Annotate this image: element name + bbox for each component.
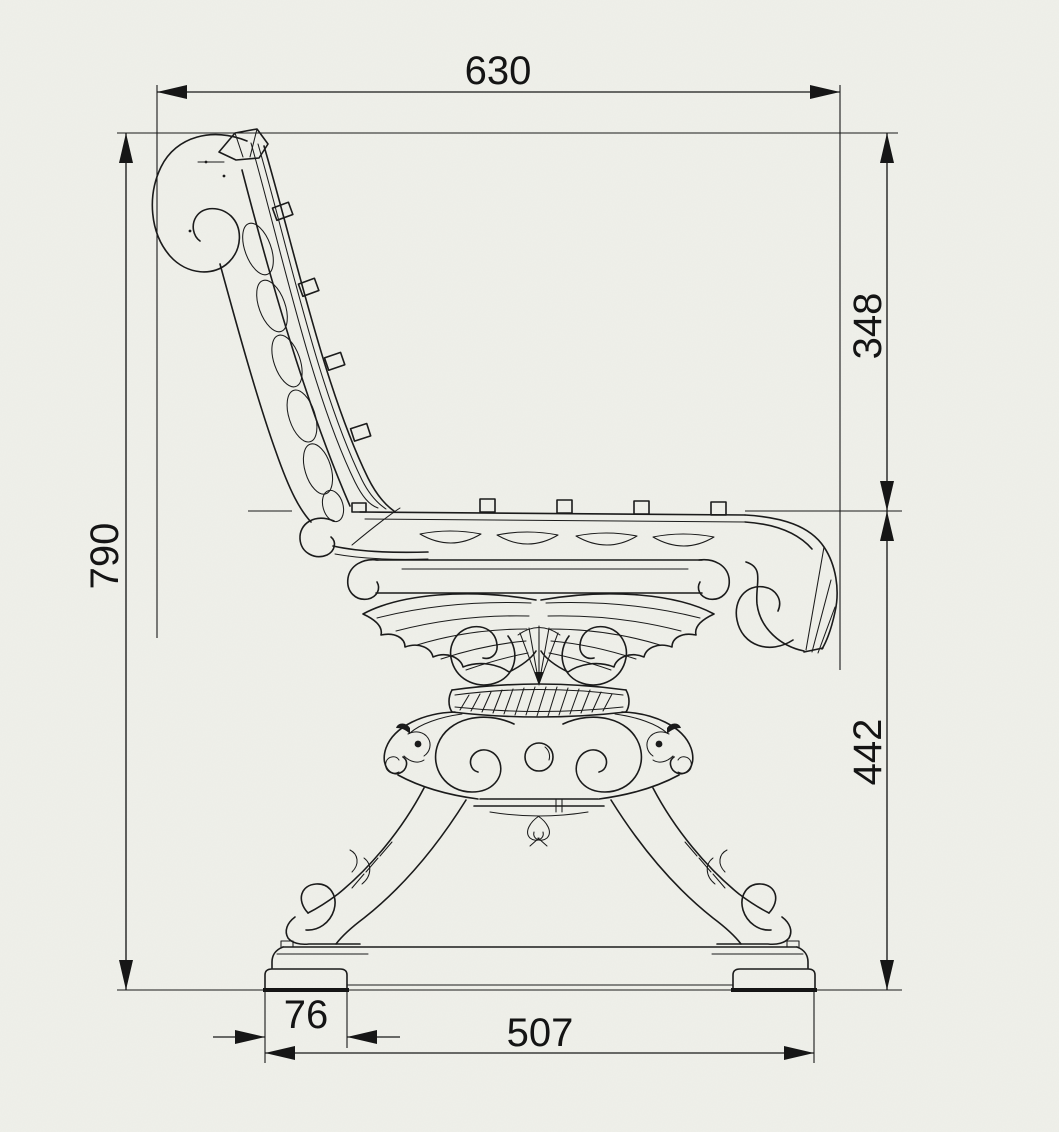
dim-base-width-label: 507 [507, 1011, 574, 1055]
dim-seat-height-label: 442 [846, 719, 890, 786]
dim-top-width-label: 630 [465, 49, 532, 93]
dim-foot-width-label: 76 [284, 993, 329, 1037]
technical-drawing-canvas: 630 790 348 442 76 507 [0, 0, 1059, 1132]
dim-backrest-height-label: 348 [846, 293, 890, 360]
dim-overall-height-label: 790 [83, 523, 127, 590]
